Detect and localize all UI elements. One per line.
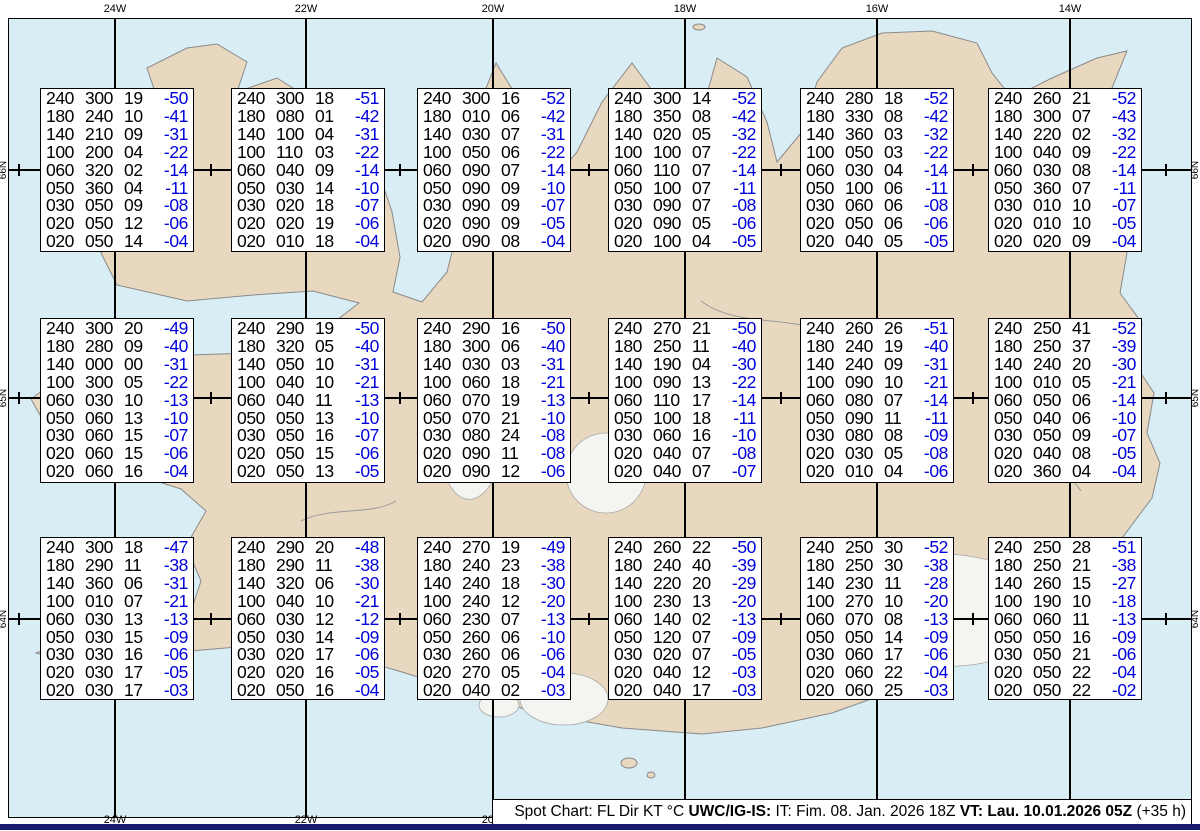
wind-speed-kt: 05: [124, 374, 146, 392]
wind-speed-kt: 10: [315, 374, 337, 392]
spot-row: 10005006-22: [423, 144, 565, 162]
flight-level: 100: [614, 593, 645, 611]
spot-row: 10004010-21: [237, 374, 379, 392]
spot-row: 06004009-14: [237, 162, 379, 180]
longitude-label-top: 16W: [857, 3, 897, 16]
spot-row: 10030005-22: [46, 374, 188, 392]
wind-direction: 040: [1033, 144, 1064, 162]
wind-speed-kt: 04: [692, 233, 714, 251]
flight-level: 020: [994, 682, 1025, 700]
spot-row: 06003012-12: [237, 611, 379, 629]
wind-speed-kt: 07: [692, 463, 714, 481]
wind-direction: 200: [85, 144, 116, 162]
flight-level: 100: [806, 374, 837, 392]
temperature-c: -14: [1102, 162, 1136, 180]
flight-level: 060: [46, 611, 77, 629]
flight-level: 060: [423, 162, 454, 180]
temperature-c: -04: [1102, 233, 1136, 251]
flight-level: 100: [237, 374, 268, 392]
spot-row: 06011007-14: [614, 162, 756, 180]
spot-row: 06005006-14: [994, 392, 1136, 410]
spot-row: 02004007-07: [614, 463, 756, 481]
flight-level: 020: [46, 682, 77, 700]
wind-speed-kt: 13: [692, 593, 714, 611]
flight-level: 060: [994, 392, 1025, 410]
wind-direction: 090: [462, 463, 493, 481]
wind-speed-kt: 03: [884, 144, 906, 162]
temperature-c: -21: [1102, 374, 1136, 392]
temperature-c: -18: [1102, 593, 1136, 611]
spot-row: 10009010-21: [806, 374, 948, 392]
temperature-c: -04: [345, 233, 379, 251]
temperature-c: -04: [154, 233, 188, 251]
graticule-tick: [588, 392, 590, 404]
flight-level: 100: [614, 374, 645, 392]
spot-table: 24028018-5218033008-4214036003-321000500…: [800, 88, 954, 252]
flight-level: 060: [806, 611, 837, 629]
longitude-label-top: 18W: [665, 3, 705, 16]
wind-direction: 010: [1033, 374, 1064, 392]
spot-row: 06006011-13: [994, 611, 1136, 629]
temperature-c: -03: [722, 682, 756, 700]
temperature-c: -05: [345, 463, 379, 481]
graticule-tick: [399, 392, 401, 404]
wind-speed-kt: 10: [1072, 593, 1094, 611]
spot-table: 24025028-5118025021-3814026015-271001901…: [988, 537, 1142, 700]
graticule-tick: [210, 613, 212, 625]
flight-level: 100: [994, 374, 1025, 392]
legend-bar: Spot Chart: FL Dir KT °C UWC/IG-IS: IT: …: [492, 799, 1192, 824]
wind-speed-kt: 09: [315, 162, 337, 180]
temperature-c: -13: [154, 611, 188, 629]
temperature-c: -20: [914, 593, 948, 611]
spot-row: 06003010-13: [46, 392, 188, 410]
wind-direction: 050: [1033, 682, 1064, 700]
latitude-label-left: 66N: [0, 155, 10, 185]
spot-table: 24026026-5118024019-4014024009-311000901…: [800, 318, 954, 483]
spot-row: 06023007-13: [423, 611, 565, 629]
wind-speed-kt: 07: [501, 611, 523, 629]
island-vestmannaeyjar: [621, 758, 637, 768]
temperature-c: -14: [1102, 392, 1136, 410]
spot-row: 02003017-03: [46, 682, 188, 700]
spot-row: 02005013-05: [237, 463, 379, 481]
spot-table: 24030014-5218035008-4214002005-321001000…: [608, 88, 762, 252]
flight-level: 060: [423, 611, 454, 629]
temperature-c: -13: [1102, 611, 1136, 629]
temperature-c: -13: [722, 611, 756, 629]
temperature-c: -05: [722, 233, 756, 251]
wind-speed-kt: 10: [315, 593, 337, 611]
spot-table: 24025041-5218025037-3914024020-301000100…: [988, 318, 1142, 483]
wind-speed-kt: 02: [124, 162, 146, 180]
flight-level: 020: [423, 463, 454, 481]
flight-level: 020: [423, 682, 454, 700]
spot-row: 10010007-22: [614, 144, 756, 162]
temperature-c: -13: [531, 611, 565, 629]
wind-speed-kt: 10: [884, 374, 906, 392]
graticule-tick: [210, 392, 212, 404]
spot-row: 06003013-13: [46, 611, 188, 629]
temperature-c: -13: [531, 392, 565, 410]
latitude-label-right: 64N: [1190, 604, 1200, 634]
wind-direction: 010: [276, 233, 307, 251]
temperature-c: -03: [914, 682, 948, 700]
wind-direction: 100: [653, 144, 684, 162]
temperature-c: -06: [531, 463, 565, 481]
temperature-c: -03: [531, 682, 565, 700]
wind-speed-kt: 07: [692, 162, 714, 180]
flight-level: 020: [806, 463, 837, 481]
flight-level: 060: [237, 611, 268, 629]
wind-speed-kt: 16: [315, 682, 337, 700]
spot-row: 10023013-20: [614, 593, 756, 611]
wind-speed-kt: 13: [692, 374, 714, 392]
graticule-tick: [780, 164, 782, 176]
spot-row: 02004005-05: [806, 233, 948, 251]
wind-direction: 020: [1033, 233, 1064, 251]
spot-table: 24029019-5018032005-4014005010-311000401…: [231, 318, 385, 483]
wind-direction: 090: [462, 233, 493, 251]
wind-direction: 030: [1033, 162, 1064, 180]
flight-level: 100: [423, 593, 454, 611]
wind-direction: 070: [845, 611, 876, 629]
spot-row: 10004009-22: [994, 144, 1136, 162]
wind-speed-kt: 11: [1072, 611, 1094, 629]
latitude-label-right: 65N: [1190, 383, 1200, 413]
wind-direction: 050: [85, 233, 116, 251]
island-grimsey: [693, 24, 705, 30]
flight-level: 060: [994, 162, 1025, 180]
wind-direction: 230: [653, 593, 684, 611]
latitude-label-left: 64N: [0, 604, 10, 634]
spot-row: 02004002-03: [423, 682, 565, 700]
flight-level: 060: [614, 392, 645, 410]
wind-direction: 040: [276, 593, 307, 611]
wind-speed-kt: 05: [884, 233, 906, 251]
wind-speed-kt: 17: [692, 392, 714, 410]
legend-issue-time: IT: Fim. 08. Jan. 2026 18Z: [771, 803, 960, 821]
wind-speed-kt: 08: [1072, 162, 1094, 180]
temperature-c: -07: [722, 463, 756, 481]
spot-row: 10004010-21: [237, 593, 379, 611]
temperature-c: -22: [722, 144, 756, 162]
wind-speed-kt: 10: [124, 392, 146, 410]
wind-direction: 030: [85, 682, 116, 700]
flight-level: 100: [46, 374, 77, 392]
wind-speed-kt: 07: [501, 162, 523, 180]
wind-direction: 030: [276, 611, 307, 629]
wind-direction: 050: [276, 682, 307, 700]
temperature-c: -22: [154, 144, 188, 162]
spot-row: 10020004-22: [46, 144, 188, 162]
wind-direction: 010: [845, 463, 876, 481]
wind-speed-kt: 08: [501, 233, 523, 251]
spot-row: 02009008-04: [423, 233, 565, 251]
temperature-c: -04: [531, 233, 565, 251]
wind-direction: 050: [845, 144, 876, 162]
wind-direction: 060: [85, 463, 116, 481]
temperature-c: -02: [1102, 682, 1136, 700]
temperature-c: -22: [345, 144, 379, 162]
wind-speed-kt: 07: [884, 392, 906, 410]
spot-row: 02005014-04: [46, 233, 188, 251]
latitude-label-right: 66N: [1190, 155, 1200, 185]
temperature-c: -13: [345, 392, 379, 410]
wind-direction: 050: [1033, 392, 1064, 410]
spot-row: 02002009-04: [994, 233, 1136, 251]
flight-level: 060: [237, 392, 268, 410]
wind-direction: 040: [276, 162, 307, 180]
graticule-tick: [972, 392, 974, 404]
wind-direction: 110: [653, 162, 684, 180]
wind-direction: 040: [653, 682, 684, 700]
spot-table: 24030018-5118008001-4214010004-311001100…: [231, 88, 385, 252]
spot-row: 10019010-18: [994, 593, 1136, 611]
longitude-label-top: 22W: [286, 3, 326, 16]
spot-table: 24026021-5218030007-4314022002-321000400…: [988, 88, 1142, 252]
spot-row: 06004011-13: [237, 392, 379, 410]
flight-level: 100: [994, 144, 1025, 162]
temperature-c: -05: [914, 233, 948, 251]
spot-row: 10001005-21: [994, 374, 1136, 392]
flight-level: 100: [614, 144, 645, 162]
temperature-c: -22: [154, 374, 188, 392]
wind-direction: 040: [276, 374, 307, 392]
flight-level: 020: [46, 463, 77, 481]
temperature-c: -21: [345, 374, 379, 392]
wind-speed-kt: 18: [501, 374, 523, 392]
temperature-c: -22: [722, 374, 756, 392]
spot-row: 10024012-20: [423, 593, 565, 611]
spot-table: 24027021-5018025011-4014019004-301000901…: [608, 318, 762, 483]
graticule-tick: [210, 164, 212, 176]
wind-speed-kt: 12: [501, 463, 523, 481]
flight-level: 060: [614, 611, 645, 629]
spot-row: 10005003-22: [806, 144, 948, 162]
wind-speed-kt: 11: [315, 392, 337, 410]
wind-direction: 070: [462, 392, 493, 410]
flight-level: 060: [806, 162, 837, 180]
wind-direction: 110: [653, 392, 684, 410]
wind-speed-kt: 13: [315, 463, 337, 481]
legend-valid-time: VT: Lau. 10.01.2026 05Z: [960, 803, 1132, 821]
flight-level: 020: [614, 233, 645, 251]
wind-direction: 030: [845, 162, 876, 180]
temperature-c: -14: [914, 392, 948, 410]
wind-speed-kt: 13: [124, 611, 146, 629]
wind-direction: 090: [462, 162, 493, 180]
flight-level: 020: [994, 233, 1025, 251]
legend-model: UWC/IG-IS:: [688, 803, 771, 821]
spot-row: 02006016-04: [46, 463, 188, 481]
spot-row: 06003004-14: [806, 162, 948, 180]
wind-direction: 040: [276, 392, 307, 410]
spot-row: 10006018-21: [423, 374, 565, 392]
graticule-tick: [780, 392, 782, 404]
flight-level: 100: [423, 374, 454, 392]
wind-direction: 140: [653, 611, 684, 629]
wind-speed-kt: 12: [501, 593, 523, 611]
graticule-tick: [780, 613, 782, 625]
temperature-c: -21: [345, 593, 379, 611]
spot-row: 06014002-13: [614, 611, 756, 629]
spot-row: 02036004-04: [994, 463, 1136, 481]
temperature-c: -14: [531, 162, 565, 180]
flight-level: 020: [994, 463, 1025, 481]
wind-speed-kt: 04: [124, 144, 146, 162]
spot-row: 06011017-14: [614, 392, 756, 410]
wind-speed-kt: 14: [124, 233, 146, 251]
wind-direction: 300: [85, 374, 116, 392]
wind-direction: 230: [462, 611, 493, 629]
wind-direction: 360: [1033, 463, 1064, 481]
wind-direction: 110: [276, 144, 307, 162]
graticule-tick: [18, 613, 20, 625]
temperature-c: -22: [914, 144, 948, 162]
spot-table: 24025030-5218025030-3814023011-281002701…: [800, 537, 954, 700]
spot-row: 06007019-13: [423, 392, 565, 410]
graticule-tick: [588, 613, 590, 625]
flight-level: 100: [237, 593, 268, 611]
spot-table: 24030016-5218001006-4214003007-311000500…: [417, 88, 571, 252]
temperature-c: -13: [154, 392, 188, 410]
wind-direction: 040: [845, 233, 876, 251]
wind-direction: 060: [462, 374, 493, 392]
temperature-c: -21: [914, 374, 948, 392]
wind-speed-kt: 02: [501, 682, 523, 700]
flight-level: 060: [237, 162, 268, 180]
temperature-c: -14: [722, 162, 756, 180]
graticule-tick: [399, 164, 401, 176]
flight-level: 020: [806, 233, 837, 251]
temperature-c: -22: [531, 144, 565, 162]
legend-prefix: Spot Chart: FL Dir KT °C: [514, 803, 688, 821]
temperature-c: -13: [914, 611, 948, 629]
spot-row: 06032002-14: [46, 162, 188, 180]
temperature-c: -04: [345, 682, 379, 700]
wind-direction: 010: [85, 593, 116, 611]
wind-direction: 320: [85, 162, 116, 180]
spot-table: 24030019-5018024010-4114021009-311002000…: [40, 88, 194, 252]
wind-speed-kt: 09: [1072, 233, 1094, 251]
spot-row: 10009013-22: [614, 374, 756, 392]
flight-level: 060: [46, 162, 77, 180]
spot-table: 24027019-4918024023-3814024018-301002401…: [417, 537, 571, 700]
flight-level: 060: [46, 392, 77, 410]
longitude-label-top: 14W: [1050, 3, 1090, 16]
flight-level: 100: [237, 144, 268, 162]
spot-row: 02009012-06: [423, 463, 565, 481]
spot-table: 24029016-5018030006-4014003003-311000601…: [417, 318, 571, 483]
wind-speed-kt: 16: [124, 463, 146, 481]
spot-row: 06008007-14: [806, 392, 948, 410]
temperature-c: -14: [154, 162, 188, 180]
wind-speed-kt: 04: [884, 162, 906, 180]
spot-table: 24030018-4718029011-3814036006-311000100…: [40, 537, 194, 700]
temperature-c: -04: [154, 463, 188, 481]
wind-direction: 240: [462, 593, 493, 611]
temperature-c: -20: [722, 593, 756, 611]
wind-speed-kt: 06: [1072, 392, 1094, 410]
longitude-label-top: 24W: [95, 3, 135, 16]
wind-speed-kt: 05: [1072, 374, 1094, 392]
wind-direction: 060: [845, 682, 876, 700]
wind-direction: 090: [845, 374, 876, 392]
wind-speed-kt: 06: [501, 144, 523, 162]
flight-level: 020: [614, 682, 645, 700]
wind-speed-kt: 08: [884, 611, 906, 629]
wind-speed-kt: 25: [884, 682, 906, 700]
graticule-tick: [18, 392, 20, 404]
graticule-tick: [588, 164, 590, 176]
wind-speed-kt: 22: [1072, 682, 1094, 700]
flight-level: 020: [237, 233, 268, 251]
legend-suffix: (+35 h): [1132, 803, 1186, 821]
flight-level: 020: [806, 682, 837, 700]
spot-row: 02006025-03: [806, 682, 948, 700]
wind-direction: 040: [653, 463, 684, 481]
spot-row: 02004017-03: [614, 682, 756, 700]
wind-speed-kt: 02: [692, 611, 714, 629]
graticule-tick: [1165, 613, 1167, 625]
wind-speed-kt: 03: [315, 144, 337, 162]
temperature-c: -21: [531, 374, 565, 392]
graticule-tick: [972, 613, 974, 625]
spot-row: 02005022-02: [994, 682, 1136, 700]
flight-level: 100: [806, 593, 837, 611]
spot-row: 06007008-13: [806, 611, 948, 629]
bottom-border-bar: [0, 824, 1200, 830]
spot-table: 24030020-4918028009-4014000000-311003000…: [40, 318, 194, 483]
wind-speed-kt: 04: [1072, 463, 1094, 481]
temperature-c: -03: [154, 682, 188, 700]
wind-direction: 030: [85, 392, 116, 410]
flight-level: 060: [423, 392, 454, 410]
wind-speed-kt: 10: [884, 593, 906, 611]
flight-level: 020: [237, 682, 268, 700]
spot-table: 24026022-5018024040-3914022020-291002301…: [608, 537, 762, 700]
flight-level: 100: [423, 144, 454, 162]
wind-direction: 100: [653, 233, 684, 251]
flight-level: 020: [423, 233, 454, 251]
spot-row: 10011003-22: [237, 144, 379, 162]
wind-direction: 050: [462, 144, 493, 162]
wind-speed-kt: 17: [692, 682, 714, 700]
graticule-tick: [1165, 392, 1167, 404]
island-small: [647, 772, 655, 778]
temperature-c: -14: [722, 392, 756, 410]
flight-level: 020: [237, 463, 268, 481]
spot-row: 10027010-20: [806, 593, 948, 611]
wind-speed-kt: 17: [124, 682, 146, 700]
wind-speed-kt: 07: [124, 593, 146, 611]
spot-row: 06003008-14: [994, 162, 1136, 180]
graticule-tick: [18, 164, 20, 176]
spot-table: 24029020-4818029011-3814032006-301000401…: [231, 537, 385, 700]
wind-direction: 050: [276, 463, 307, 481]
spot-row: 06009007-14: [423, 162, 565, 180]
graticule-tick: [1165, 164, 1167, 176]
wind-speed-kt: 19: [501, 392, 523, 410]
flight-level: 060: [806, 392, 837, 410]
graticule-tick: [972, 164, 974, 176]
temperature-c: -12: [345, 611, 379, 629]
wind-direction: 270: [845, 593, 876, 611]
wind-direction: 090: [653, 374, 684, 392]
temperature-c: -20: [531, 593, 565, 611]
spot-row: 10001007-21: [46, 593, 188, 611]
